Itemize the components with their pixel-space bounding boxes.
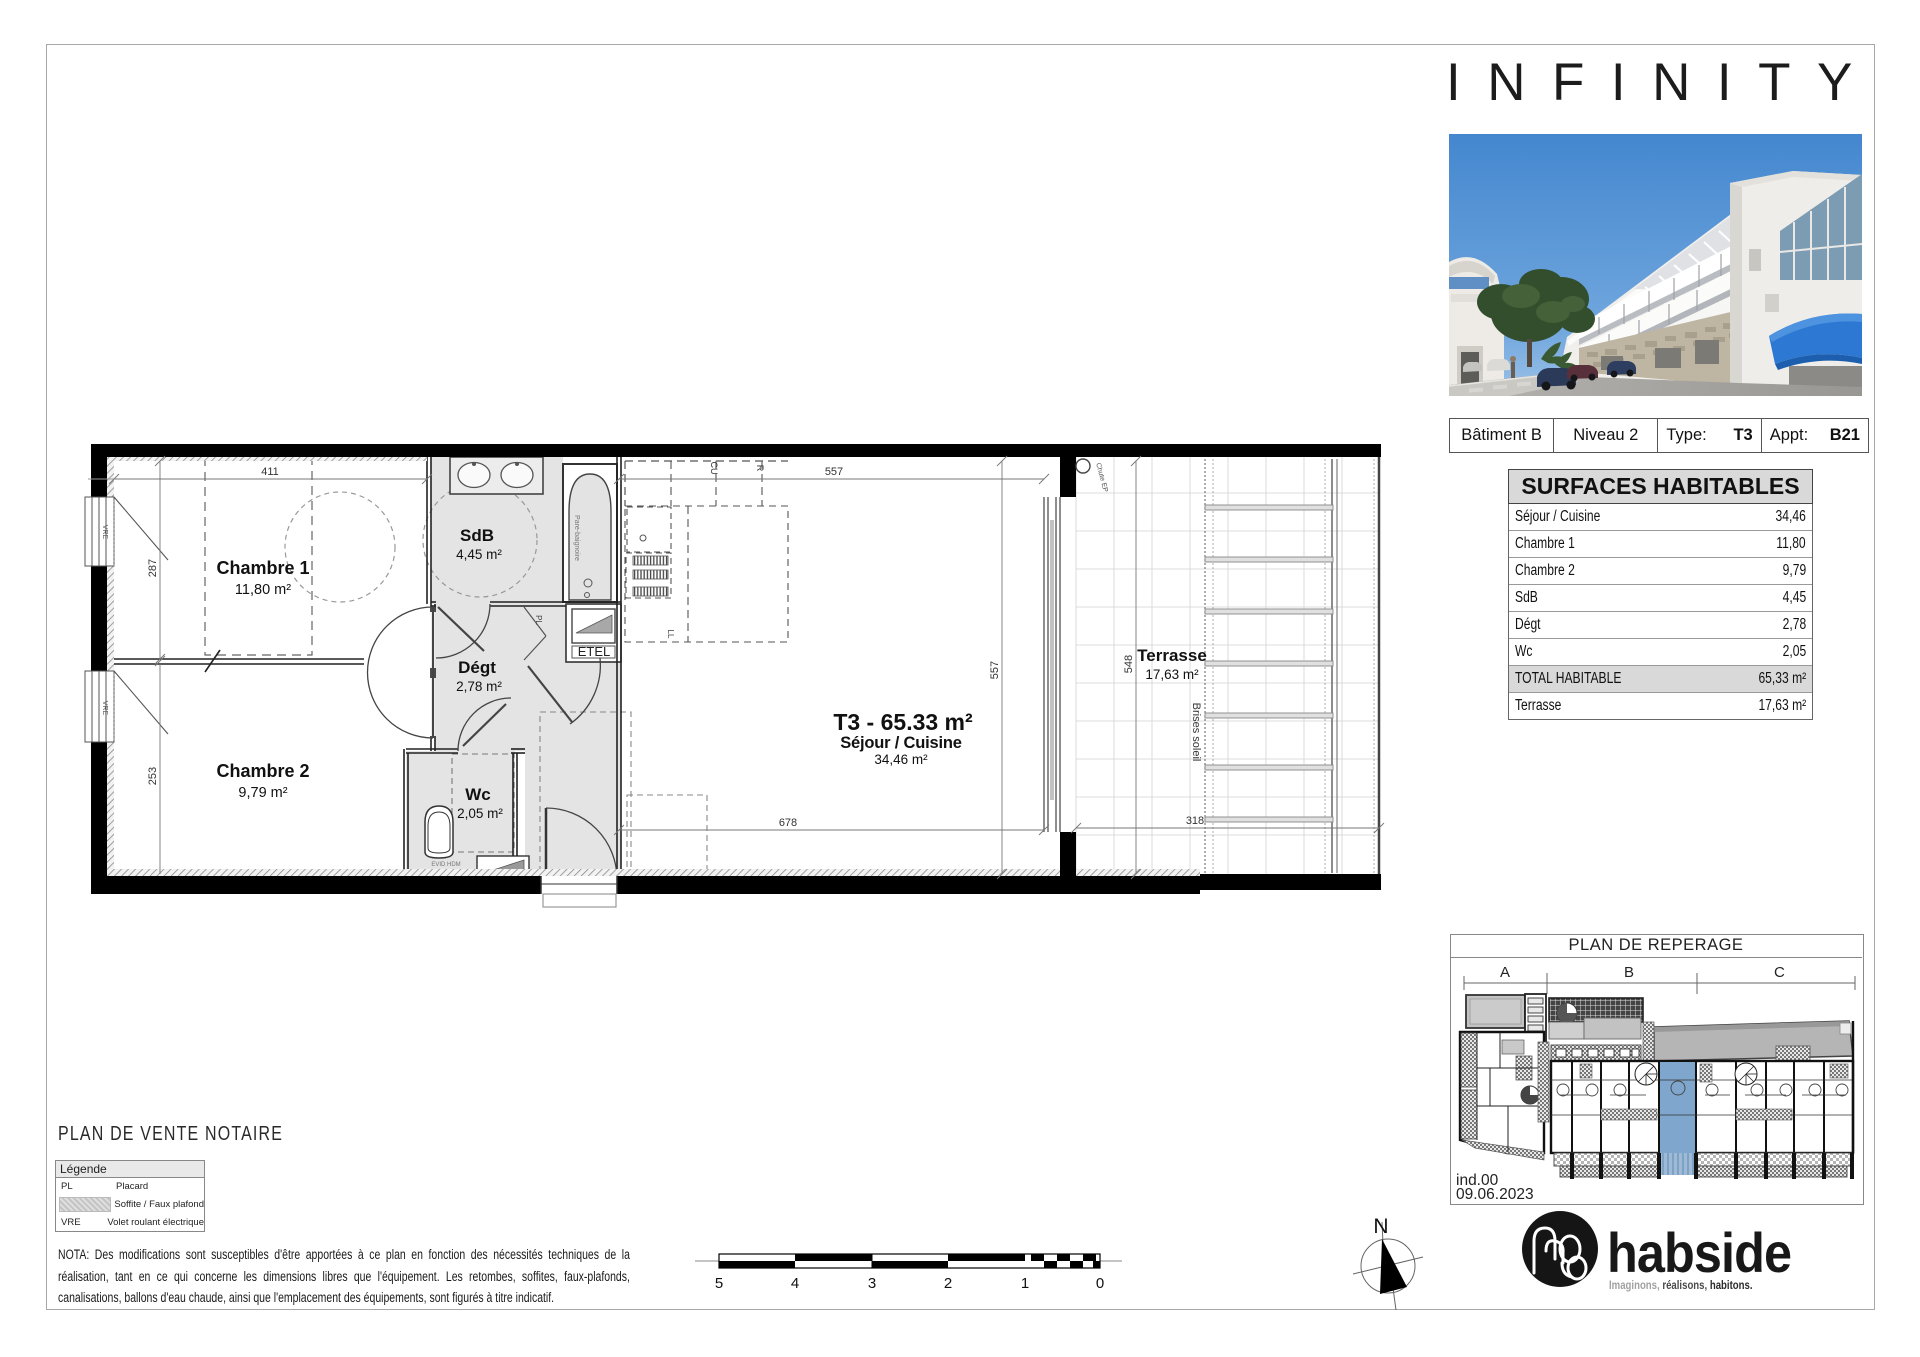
svg-text:557: 557 [989, 661, 1001, 679]
svg-text:3: 3 [868, 1275, 876, 1292]
svg-text:2,05 m²: 2,05 m² [457, 806, 503, 821]
svg-text:Chambre 2: Chambre 2 [216, 761, 309, 781]
svg-text:EVID HDM: EVID HDM [431, 862, 460, 868]
svg-text:411: 411 [261, 466, 279, 478]
svg-text:4,45 m²: 4,45 m² [456, 547, 502, 562]
svg-text:678: 678 [779, 817, 797, 829]
svg-text:2: 2 [944, 1275, 952, 1292]
svg-text:11,80 m²: 11,80 m² [235, 582, 291, 598]
svg-text:T3 - 65.33 m²: T3 - 65.33 m² [833, 709, 973, 735]
svg-text:17,63 m²: 17,63 m² [1145, 667, 1199, 682]
svg-text:VRE: VRE [101, 701, 108, 716]
svg-text:PL: PL [534, 615, 543, 625]
svg-text:548: 548 [1123, 655, 1135, 673]
svg-text:0: 0 [1096, 1275, 1104, 1292]
svg-text:5: 5 [715, 1275, 723, 1292]
svg-text:2,78 m²: 2,78 m² [456, 679, 502, 694]
svg-text:Chambre 1: Chambre 1 [216, 558, 309, 578]
svg-text:Wc: Wc [465, 785, 491, 804]
svg-text:LL: LL [666, 630, 675, 639]
svg-text:Brises soleil: Brises soleil [1190, 703, 1202, 762]
svg-text:ETEL: ETEL [578, 644, 611, 659]
svg-text:253: 253 [147, 767, 159, 785]
svg-text:1: 1 [1021, 1275, 1029, 1292]
svg-text:34,46 m²: 34,46 m² [874, 752, 928, 767]
svg-text:N: N [1373, 1215, 1388, 1238]
svg-text:CU: CU [709, 462, 719, 475]
svg-text:VRE: VRE [101, 525, 108, 540]
svg-text:SdB: SdB [460, 526, 494, 545]
svg-text:R: R [755, 465, 765, 472]
svg-text:4: 4 [791, 1275, 799, 1292]
svg-text:318: 318 [1186, 815, 1204, 827]
svg-text:Pare-baignoire: Pare-baignoire [573, 515, 580, 561]
svg-text:9,79 m²: 9,79 m² [238, 785, 287, 801]
svg-text:557: 557 [825, 466, 843, 478]
svg-text:Dégt: Dégt [458, 658, 496, 677]
svg-text:Séjour / Cuisine: Séjour / Cuisine [840, 734, 962, 752]
svg-text:287: 287 [147, 559, 159, 577]
svg-text:Chute EP: Chute EP [1094, 462, 1109, 493]
svg-text:Terrasse: Terrasse [1137, 646, 1207, 665]
